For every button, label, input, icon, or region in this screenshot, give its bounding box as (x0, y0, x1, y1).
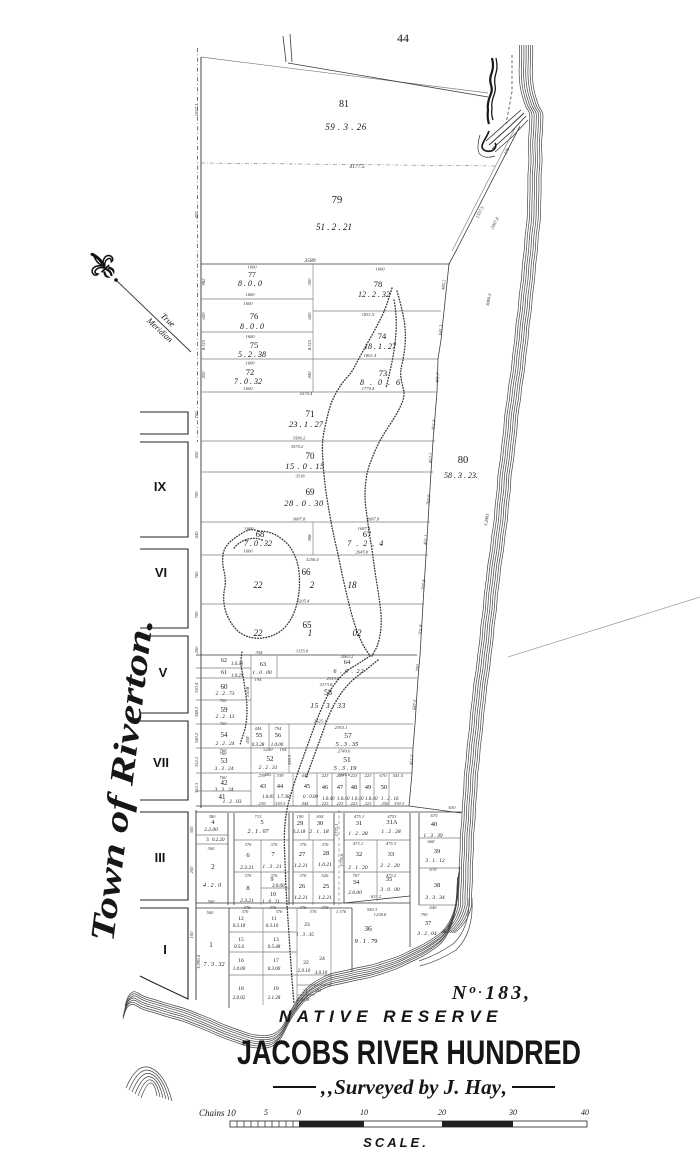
svg-text:57: 57 (344, 731, 352, 740)
svg-text:30: 30 (508, 1108, 517, 1117)
svg-text:450: 450 (194, 211, 199, 219)
svg-text:12: 12 (238, 916, 244, 922)
svg-text:760: 760 (194, 411, 199, 419)
svg-text:600: 600 (201, 312, 206, 320)
svg-text:2763.1: 2763.1 (335, 725, 348, 730)
svg-text:1600: 1600 (245, 334, 255, 339)
svg-text:600: 600 (307, 312, 312, 320)
svg-text:60: 60 (221, 683, 229, 691)
svg-text:700: 700 (194, 491, 199, 499)
svg-text:15 . 0 . 15: 15 . 0 . 15 (285, 461, 325, 471)
svg-text:1557.1: 1557.1 (194, 104, 199, 117)
svg-text:34: 34 (353, 879, 360, 886)
svg-text:20: 20 (438, 1108, 446, 1117)
svg-text:23 . 1 . 27: 23 . 1 . 27 (289, 419, 324, 429)
svg-text:44: 44 (397, 31, 409, 45)
svg-text:707.8: 707.8 (421, 579, 427, 590)
svg-text:481.7: 481.7 (435, 372, 441, 383)
svg-text:IX: IX (154, 479, 167, 494)
svg-text:58 . 3 . 23.: 58 . 3 . 23. (444, 471, 478, 480)
svg-text:79: 79 (332, 195, 343, 206)
svg-text:38: 38 (434, 882, 441, 889)
svg-text:3205.4: 3205.4 (297, 599, 310, 604)
svg-text:3: 3 (206, 837, 209, 843)
svg-text:5 . 3 . 35: 5 . 3 . 35 (336, 741, 360, 748)
svg-text:18: 18 (348, 580, 358, 590)
svg-text:2 . 1 . 20: 2 . 1 . 20 (348, 865, 368, 871)
svg-text:19: 19 (273, 986, 279, 992)
svg-text:5 . 3 . 19: 5 . 3 . 19 (334, 765, 358, 772)
svg-text:15 . 3 . 33: 15 . 3 . 33 (310, 701, 346, 710)
svg-text:53: 53 (221, 757, 229, 765)
svg-text:1600: 1600 (375, 267, 385, 272)
svg-text:72: 72 (246, 367, 255, 377)
svg-text:1.7.38: 1.7.38 (277, 795, 290, 800)
svg-text:451.5: 451.5 (409, 754, 415, 765)
svg-text:200: 200 (194, 646, 199, 654)
svg-text:55: 55 (256, 732, 263, 739)
svg-text:5570.4: 5570.4 (300, 391, 313, 396)
svg-text:707: 707 (353, 873, 361, 878)
svg-text:64: 64 (344, 659, 351, 666)
svg-text:200: 200 (189, 866, 194, 874)
svg-text:300: 300 (208, 846, 216, 851)
svg-text:3589: 3589 (303, 258, 315, 264)
svg-text:1801.4: 1801.4 (364, 353, 377, 358)
svg-text:760: 760 (220, 721, 228, 726)
svg-text:7 . 3 . 32: 7 . 3 . 32 (204, 962, 225, 968)
svg-text:40: 40 (431, 821, 438, 828)
svg-text:0.3.10: 0.3.10 (266, 924, 279, 929)
svg-text:3518: 3518 (295, 474, 305, 479)
svg-text:0 . 0.00: 0 . 0.00 (303, 795, 319, 800)
svg-text:2.0.00: 2.0.00 (348, 890, 362, 896)
svg-text:982: 982 (201, 278, 206, 286)
svg-text:352.1: 352.1 (194, 757, 199, 767)
svg-text:VI: VI (155, 565, 167, 580)
svg-text:458: 458 (245, 736, 250, 744)
svg-text:50: 50 (381, 784, 387, 791)
svg-text:Chains 10: Chains 10 (199, 1108, 236, 1118)
svg-text:III: III (155, 850, 166, 865)
svg-text:475.1: 475.1 (354, 814, 364, 819)
svg-text:473.1: 473.1 (353, 841, 363, 846)
svg-text:1600: 1600 (243, 549, 253, 554)
svg-text:760: 760 (220, 698, 228, 703)
svg-text:541.5: 541.5 (393, 773, 404, 778)
svg-text:7 . 0 . 32: 7 . 0 . 32 (244, 539, 272, 548)
svg-text:700: 700 (194, 611, 199, 619)
svg-text:641.3: 641.3 (438, 324, 444, 335)
svg-text:3580.2: 3580.2 (293, 436, 306, 441)
svg-text:7 . 2 . 4: 7 . 2 . 4 (347, 539, 385, 548)
svg-text:No.183,: No.183, (451, 981, 532, 1004)
svg-text:300: 300 (307, 278, 312, 286)
svg-text:2 . 2 . 31: 2 . 2 . 31 (259, 765, 278, 771)
svg-text:35: 35 (386, 876, 393, 883)
svg-text:444: 444 (255, 726, 263, 731)
svg-text:81: 81 (339, 99, 349, 110)
svg-text:760: 760 (220, 751, 228, 756)
svg-text:526: 526 (322, 873, 330, 878)
svg-text:239: 239 (259, 801, 267, 806)
svg-text:1600: 1600 (245, 361, 255, 366)
svg-text:1.0.00: 1.0.00 (233, 967, 246, 972)
svg-text:398: 398 (307, 534, 312, 542)
svg-text:0.3.00: 0.3.00 (268, 967, 281, 972)
svg-text:3.0.10: 3.0.10 (315, 971, 328, 976)
svg-text:V: V (159, 665, 168, 680)
svg-text:2 . 2 . 24: 2 . 2 . 24 (216, 741, 235, 747)
svg-text:73: 73 (379, 368, 388, 378)
svg-text:760: 760 (194, 571, 199, 579)
svg-text:2 . 2 . 13: 2 . 2 . 13 (216, 714, 235, 720)
svg-text:440: 440 (194, 531, 199, 539)
svg-text:45: 45 (304, 783, 310, 790)
svg-text:223: 223 (322, 801, 330, 806)
svg-text:3 . 3 . 24: 3 . 3 . 24 (214, 766, 234, 772)
svg-text:62: 62 (221, 658, 227, 664)
svg-text:2.3.21: 2.3.21 (240, 865, 254, 871)
svg-text:352.3: 352.3 (194, 782, 199, 793)
svg-text:2373.8: 2373.8 (320, 682, 333, 687)
svg-text:8.315: 8.315 (307, 339, 312, 350)
svg-text:339.5: 339.5 (287, 754, 292, 765)
svg-text:0.5.6: 0.5.6 (234, 945, 245, 950)
svg-text:30: 30 (317, 820, 324, 827)
svg-text:7 . 0 . 32: 7 . 0 . 32 (234, 377, 262, 386)
svg-text:JACOBS RIVER HUNDRED: JACOBS RIVER HUNDRED (237, 1034, 581, 1072)
svg-text:2 . 1 . 07: 2 . 1 . 07 (248, 829, 270, 835)
svg-text:1 . 3 . 35: 1 . 3 . 35 (296, 933, 314, 938)
svg-text:27: 27 (299, 851, 306, 858)
svg-text:10: 10 (270, 892, 276, 898)
svg-text:483.2: 483.2 (441, 279, 447, 290)
svg-text:1600: 1600 (243, 386, 253, 391)
svg-text:794: 794 (275, 726, 283, 731)
svg-text:223: 223 (322, 773, 330, 778)
svg-text:687.0: 687.0 (412, 699, 418, 710)
svg-text:33: 33 (388, 851, 395, 858)
svg-text:1.458: 1.458 (245, 686, 250, 697)
svg-text:15: 15 (238, 937, 244, 943)
svg-text:22: 22 (303, 960, 309, 966)
svg-text:300: 300 (189, 826, 194, 834)
svg-text:3 . 1 . 12: 3 . 1 . 12 (424, 858, 445, 864)
svg-text:43: 43 (260, 783, 266, 790)
svg-text:11: 11 (271, 916, 277, 922)
svg-text:‚‚Surveyed by J. Hay‚: ‚‚Surveyed by J. Hay‚ (320, 1075, 508, 1099)
svg-text:1 . 2 . 28: 1 . 2 . 28 (348, 831, 368, 837)
svg-text:1600: 1600 (245, 292, 255, 297)
svg-text:640: 640 (430, 905, 438, 910)
svg-text:SCALE.: SCALE. (363, 1135, 429, 1150)
svg-text:2645.8: 2645.8 (356, 550, 369, 555)
svg-text:223: 223 (337, 801, 345, 806)
svg-text:452.2: 452.2 (428, 452, 434, 463)
svg-text:2.2.00: 2.2.00 (204, 827, 218, 833)
svg-text:59 . 3 . 26: 59 . 3 . 26 (325, 122, 367, 132)
svg-text:1776.6: 1776.6 (339, 853, 344, 866)
svg-text:18: 18 (238, 986, 244, 992)
svg-text:31A: 31A (386, 819, 398, 826)
svg-text:376: 376 (300, 905, 308, 910)
svg-text:44: 44 (277, 783, 283, 790)
svg-text:3570.2: 3570.2 (291, 444, 304, 449)
svg-text:3 . 0 . 00: 3 . 0 . 00 (379, 887, 400, 893)
svg-text:1 . 2 . 28: 1 . 2 . 28 (381, 829, 401, 835)
svg-text:70: 70 (306, 451, 316, 461)
svg-text:376: 376 (322, 842, 330, 847)
svg-text:2: 2 (211, 863, 215, 871)
svg-text:52: 52 (267, 755, 275, 763)
svg-text:1.2.21: 1.2.21 (294, 863, 308, 869)
svg-text:1.090.4: 1.090.4 (196, 954, 201, 968)
svg-text:28 . 0 . 30: 28 . 0 . 30 (284, 498, 324, 508)
svg-text:376: 376 (310, 909, 318, 914)
svg-text:1 . 2 . 03: 1 . 2 . 03 (223, 799, 242, 805)
svg-text:37: 37 (425, 920, 432, 927)
svg-text:1775.1: 1775.1 (334, 824, 339, 837)
svg-text:223: 223 (365, 801, 373, 806)
svg-text:29: 29 (297, 820, 304, 827)
svg-text:700: 700 (415, 664, 421, 672)
svg-text:190: 190 (297, 814, 305, 819)
svg-text:2.1.28: 2.1.28 (268, 996, 281, 1001)
svg-text:61: 61 (221, 670, 227, 676)
svg-text:42: 42 (221, 779, 229, 787)
svg-text:376: 376 (300, 842, 308, 847)
svg-text:2 . 2 . 20: 2 . 2 . 20 (380, 863, 400, 869)
svg-text:1 . 3 . 21: 1 . 3 . 21 (262, 864, 282, 870)
svg-text:0.2.20: 0.2.20 (212, 838, 225, 843)
svg-text:1.2.21: 1.2.21 (318, 895, 332, 901)
svg-text:3256.4: 3256.4 (306, 557, 319, 562)
svg-text:2.0.10: 2.0.10 (298, 969, 311, 974)
svg-text:4177.5: 4177.5 (349, 164, 365, 170)
svg-text:12 . 2 . 32: 12 . 2 . 32 (358, 290, 390, 299)
svg-text:13: 13 (273, 937, 279, 943)
svg-text:1: 1 (209, 941, 213, 949)
svg-text:376: 376 (322, 905, 330, 910)
svg-text:340.2: 340.2 (194, 732, 199, 743)
svg-text:5: 5 (264, 1108, 268, 1117)
svg-text:40: 40 (581, 1108, 589, 1117)
svg-text:31: 31 (356, 820, 363, 827)
svg-text:1770.4: 1770.4 (362, 386, 375, 391)
svg-text:1600: 1600 (247, 265, 257, 270)
svg-text:49: 49 (365, 784, 371, 791)
svg-text:348.3: 348.3 (194, 706, 199, 717)
svg-text:8.315: 8.315 (201, 339, 206, 350)
svg-text:760.9: 760.9 (426, 494, 432, 505)
svg-text:376: 376 (245, 842, 253, 847)
svg-text:54: 54 (221, 731, 229, 739)
svg-text:475.3: 475.3 (386, 841, 397, 846)
svg-text:1.0.05: 1.0.05 (262, 795, 275, 800)
svg-text:223: 223 (351, 801, 359, 806)
svg-text:26: 26 (299, 883, 306, 890)
svg-text:256: 256 (382, 801, 390, 806)
svg-text:223: 223 (365, 773, 373, 778)
svg-text:1.376: 1.376 (336, 909, 347, 914)
svg-text:36: 36 (364, 924, 372, 933)
svg-text:1 . 0 . 00: 1 . 0 . 00 (252, 670, 272, 676)
svg-text:51: 51 (343, 755, 351, 764)
svg-text:451.1: 451.1 (423, 534, 429, 545)
svg-text:5 . 2 . 38: 5 . 2 . 38 (238, 350, 266, 359)
svg-text:2: 2 (310, 580, 315, 590)
svg-text:223: 223 (337, 773, 345, 778)
svg-text:444: 444 (302, 801, 310, 806)
svg-text:701.8: 701.8 (418, 624, 424, 635)
svg-text:32: 32 (356, 851, 363, 858)
svg-text:500: 500 (207, 910, 215, 915)
svg-text:3155.8: 3155.8 (296, 649, 309, 654)
svg-text:0.5.48: 0.5.48 (268, 945, 281, 950)
svg-text:239: 239 (259, 773, 267, 778)
svg-text:NATIVE RESERVE: NATIVE RESERVE (279, 1007, 503, 1026)
svg-text:24: 24 (319, 956, 325, 962)
svg-text:22: 22 (254, 628, 264, 638)
svg-text:46: 46 (322, 784, 328, 791)
svg-text:VII: VII (153, 755, 169, 770)
svg-text:339.3: 339.3 (394, 801, 405, 806)
svg-text:63: 63 (260, 661, 267, 668)
svg-text:630: 630 (449, 805, 457, 810)
svg-text:48: 48 (351, 784, 357, 791)
svg-text:440: 440 (307, 371, 312, 379)
svg-text:76: 76 (250, 311, 259, 321)
svg-text:74: 74 (378, 331, 387, 341)
svg-text:75: 75 (250, 340, 259, 350)
svg-text:376: 376 (242, 909, 250, 914)
svg-text:339: 339 (277, 773, 285, 778)
svg-text:376: 376 (300, 873, 308, 878)
svg-text:100: 100 (189, 931, 194, 939)
svg-text:10: 10 (360, 1108, 368, 1117)
svg-text:1: 1 (308, 628, 313, 638)
svg-text:451.3: 451.3 (431, 419, 437, 430)
svg-text:9 . 1 . 79: 9 . 1 . 79 (355, 938, 379, 945)
svg-text:1600: 1600 (243, 301, 253, 306)
svg-text:51 . 2 . 21: 51 . 2 . 21 (316, 222, 352, 232)
svg-text:2687.8: 2687.8 (367, 517, 380, 522)
svg-text:1.0.21: 1.0.21 (318, 862, 332, 868)
svg-text:3 . 2 . 04: 3 . 2 . 04 (416, 930, 437, 937)
svg-text:0: 0 (297, 1108, 301, 1117)
svg-text:223: 223 (351, 773, 359, 778)
svg-text:8: 8 (246, 885, 249, 892)
svg-text:4 . 2 . 0: 4 . 2 . 0 (203, 882, 221, 889)
svg-text:2 . 1 . 18: 2 . 1 . 18 (309, 829, 329, 835)
svg-text:450: 450 (201, 371, 206, 379)
svg-text:71: 71 (306, 409, 315, 419)
svg-text:02: 02 (353, 628, 363, 638)
svg-text:80: 80 (458, 455, 469, 466)
svg-text:0.2.18: 0.2.18 (293, 830, 306, 835)
svg-text:2325.1: 2325.1 (314, 719, 327, 724)
svg-text:670: 670 (430, 867, 438, 872)
svg-text:670: 670 (380, 773, 388, 778)
svg-text:16: 16 (238, 958, 244, 964)
svg-text:22: 22 (254, 580, 264, 590)
svg-text:47: 47 (337, 784, 343, 791)
svg-text:56: 56 (275, 732, 282, 739)
svg-text:376: 376 (245, 873, 253, 878)
svg-text:77: 77 (248, 270, 256, 279)
svg-text:9: 9 (271, 877, 274, 883)
svg-text:790: 790 (421, 912, 429, 917)
svg-text:3 . 3 . 34: 3 . 3 . 34 (424, 894, 445, 901)
svg-text:66: 66 (302, 567, 312, 577)
svg-text:17: 17 (273, 958, 279, 964)
svg-text:1238.8: 1238.8 (374, 912, 387, 917)
svg-text:5: 5 (260, 819, 263, 826)
svg-text:23: 23 (304, 922, 310, 928)
svg-text:8 . 0 . 0: 8 . 0 . 0 (240, 322, 264, 331)
svg-text:69: 69 (306, 487, 316, 497)
svg-text:633.2: 633.2 (371, 894, 382, 899)
svg-text:3687.8: 3687.8 (293, 517, 306, 522)
svg-text:2740.6: 2740.6 (338, 749, 351, 754)
svg-text:354: 354 (256, 650, 264, 655)
svg-text:18 . 1 . 27: 18 . 1 . 27 (364, 342, 397, 351)
svg-text:I: I (163, 942, 167, 957)
svg-text:376: 376 (271, 842, 279, 847)
svg-text:668: 668 (428, 839, 436, 844)
svg-text:376: 376 (276, 909, 284, 914)
svg-text:1.2.21: 1.2.21 (294, 895, 308, 901)
svg-text:339.3: 339.3 (275, 801, 286, 806)
svg-text:330.4: 330.4 (194, 682, 199, 693)
svg-text:39: 39 (434, 848, 441, 855)
svg-text:654: 654 (317, 814, 325, 819)
svg-text:450: 450 (194, 451, 199, 459)
svg-text:1851.5: 1851.5 (362, 312, 375, 317)
svg-text:59: 59 (221, 706, 229, 714)
svg-text:2 . 2 . 73: 2 . 2 . 73 (216, 691, 235, 697)
svg-text:0.3.18: 0.3.18 (233, 924, 246, 929)
svg-text:8 . 0 . 0: 8 . 0 . 0 (238, 279, 262, 288)
svg-text:2.0.02: 2.0.02 (233, 996, 246, 1001)
svg-text:25: 25 (323, 883, 330, 890)
svg-text:28: 28 (323, 850, 330, 857)
svg-text:78: 78 (374, 279, 383, 289)
svg-text:670: 670 (431, 813, 439, 818)
